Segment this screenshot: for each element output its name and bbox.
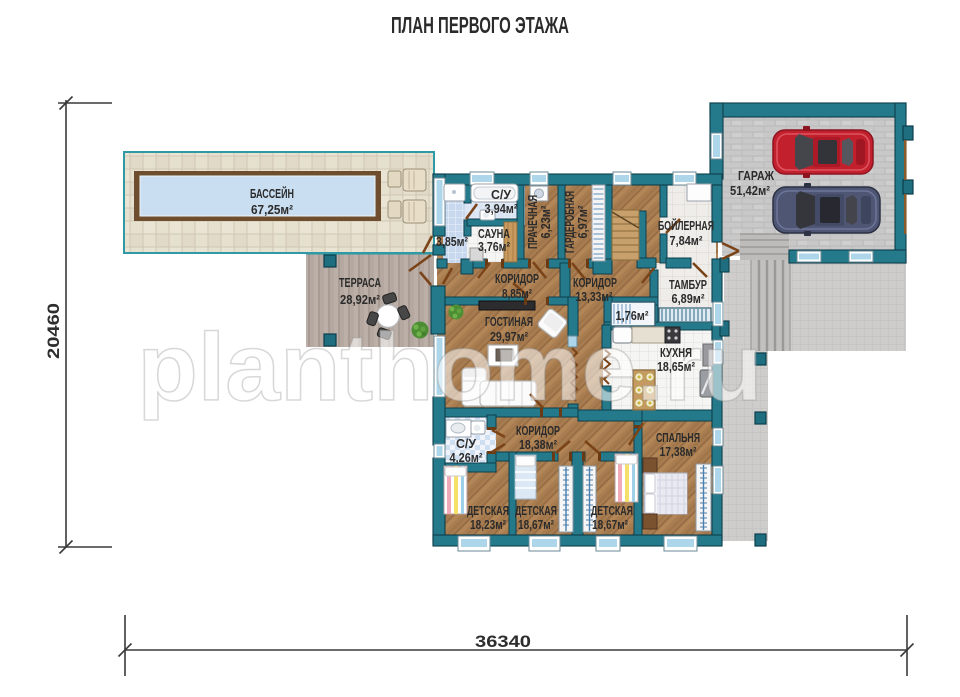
svg-text:СПАЛЬНЯ: СПАЛЬНЯ xyxy=(656,431,700,445)
svg-text:ТЕРРАСА: ТЕРРАСА xyxy=(339,276,381,290)
svg-text:ДЕТСКАЯ: ДЕТСКАЯ xyxy=(591,504,633,518)
svg-text:13,33м²: 13,33м² xyxy=(576,290,613,304)
svg-text:1,76м²: 1,76м² xyxy=(616,309,649,323)
svg-text:ДЕТСКАЯ: ДЕТСКАЯ xyxy=(515,504,557,518)
svg-text:С/У: С/У xyxy=(491,188,511,202)
svg-text:КОРИДОР: КОРИДОР xyxy=(495,272,539,286)
svg-text:КОРИДОР: КОРИДОР xyxy=(516,424,560,438)
svg-text:ГАРДЕРОБНАЯ: ГАРДЕРОБНАЯ xyxy=(563,191,577,253)
svg-text:17,38м²: 17,38м² xyxy=(660,445,697,459)
svg-text:7,84м²: 7,84м² xyxy=(670,234,703,248)
svg-text:ПРАЧЕЧНАЯ: ПРАЧЕЧНАЯ xyxy=(526,195,540,249)
svg-text:ДЕТСКАЯ: ДЕТСКАЯ xyxy=(467,504,509,518)
svg-text:6,97м²: 6,97м² xyxy=(576,206,590,239)
svg-text:8,85м²: 8,85м² xyxy=(502,287,532,301)
svg-text:КОРИДОР: КОРИДОР xyxy=(573,276,617,290)
svg-text:БОЙЛЕРНАЯ: БОЙЛЕРНАЯ xyxy=(658,218,714,233)
svg-text:51,42м²: 51,42м² xyxy=(730,184,770,198)
svg-text:6,89м²: 6,89м² xyxy=(672,292,705,306)
svg-text:18,67м²: 18,67м² xyxy=(592,518,628,532)
svg-text:САУНА: САУНА xyxy=(478,227,510,241)
svg-text:18,65м²: 18,65м² xyxy=(657,360,695,374)
svg-text:29,97м²: 29,97м² xyxy=(490,330,528,344)
svg-text:ГАРАЖ: ГАРАЖ xyxy=(738,169,775,183)
svg-text:28,92м²: 28,92м² xyxy=(340,293,380,307)
svg-text:67,25м²: 67,25м² xyxy=(251,203,293,217)
svg-text:3,76м²: 3,76м² xyxy=(478,240,510,254)
svg-text:3,94м²: 3,94м² xyxy=(485,202,518,216)
svg-text:18,38м²: 18,38м² xyxy=(519,438,557,452)
svg-text:КУХНЯ: КУХНЯ xyxy=(660,346,692,360)
svg-text:БАССЕЙН: БАССЕЙН xyxy=(250,186,294,201)
svg-text:18,67м²: 18,67м² xyxy=(518,518,554,532)
svg-text:6,23м²: 6,23м² xyxy=(539,206,553,239)
svg-text:ГОСТИНАЯ: ГОСТИНАЯ xyxy=(485,315,533,329)
svg-text:4,26м²: 4,26м² xyxy=(450,451,483,465)
svg-text:20460: 20460 xyxy=(44,303,63,359)
svg-text:ПЛАН ПЕРВОГО ЭТАЖА: ПЛАН ПЕРВОГО ЭТАЖА xyxy=(391,12,569,38)
svg-text:С/У: С/У xyxy=(456,437,476,451)
svg-text:36340: 36340 xyxy=(475,632,531,651)
svg-text:3,85м²: 3,85м² xyxy=(436,235,468,249)
svg-text:18,23м²: 18,23м² xyxy=(470,518,506,532)
svg-text:ТАМБУР: ТАМБУР xyxy=(669,278,707,292)
